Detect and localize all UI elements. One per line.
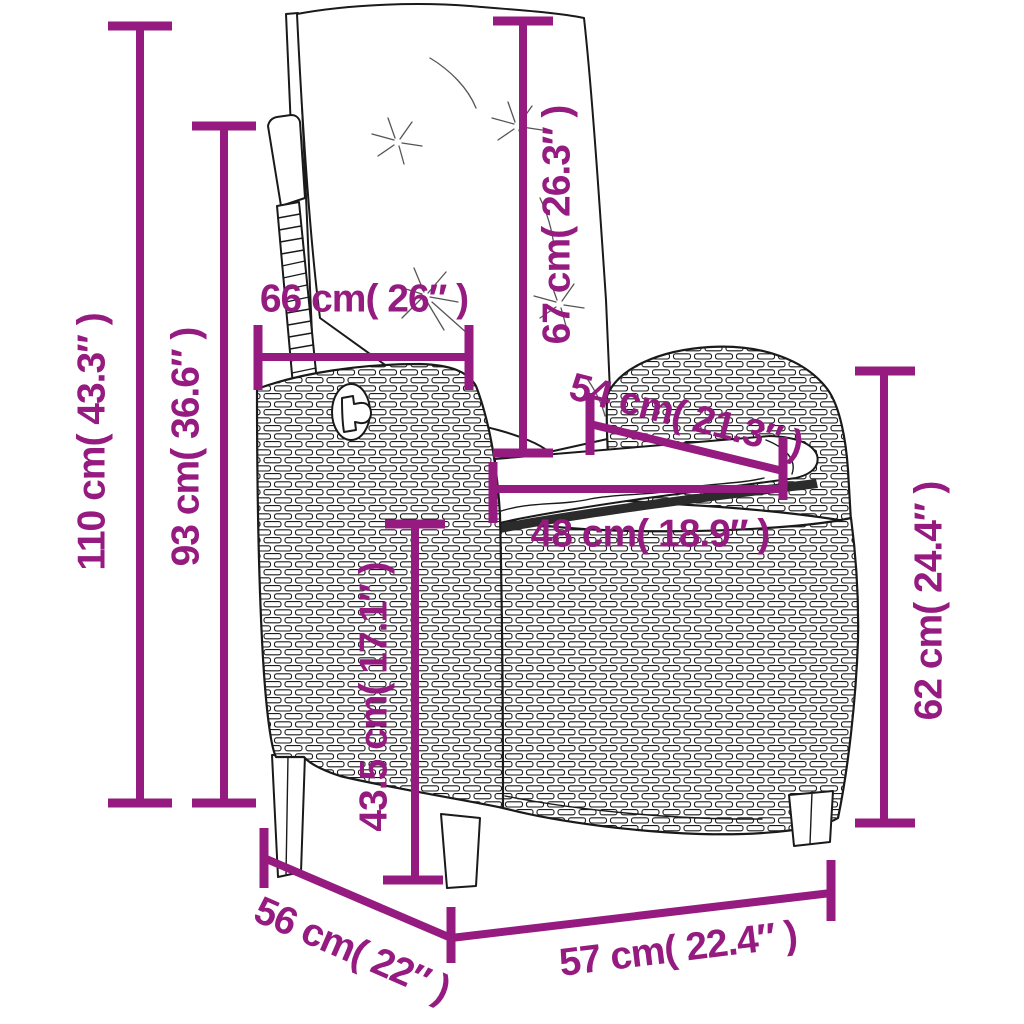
base-left-leg — [441, 814, 480, 888]
product-dimension-diagram: 110 cm( 43.3″ ) 93 cm( 36.6″ ) 66 cm( 26… — [0, 0, 1024, 1024]
front-left-leg — [272, 755, 305, 877]
recline-arm — [268, 115, 305, 206]
dimension-label-seat-height: 43.5 cm( 17.1″ ) — [353, 562, 396, 831]
dimension-backrest-height: 93 cm( 36.6″ ) — [165, 126, 257, 803]
base-skirt — [492, 516, 858, 834]
dimension-label-back-cushion-width: 66 cm( 26″ ) — [260, 278, 468, 321]
dimension-label-frame-depth: 56 cm( 22″ ) — [248, 889, 456, 1011]
dimension-label-seat-width: 48 cm( 18.9″ ) — [531, 513, 770, 556]
dimension-label-armrest-height: 62 cm( 24.4″ ) — [908, 482, 951, 721]
dimension-armrest-height: 62 cm( 24.4″ ) — [855, 371, 951, 823]
dimension-label-backrest-height: 93 cm( 36.6″ ) — [165, 328, 208, 567]
dimension-label-overall-height: 110 cm( 43.3″ ) — [71, 313, 114, 570]
dimension-overall-height: 110 cm( 43.3″ ) — [71, 26, 173, 803]
dimension-frame-width: 57 cm( 22.4″ ) — [451, 860, 831, 985]
diagram-canvas: 110 cm( 43.3″ ) 93 cm( 36.6″ ) 66 cm( 26… — [0, 0, 1024, 1024]
dimension-label-back-cushion-length: 67 cm( 26.3″ ) — [536, 106, 579, 345]
